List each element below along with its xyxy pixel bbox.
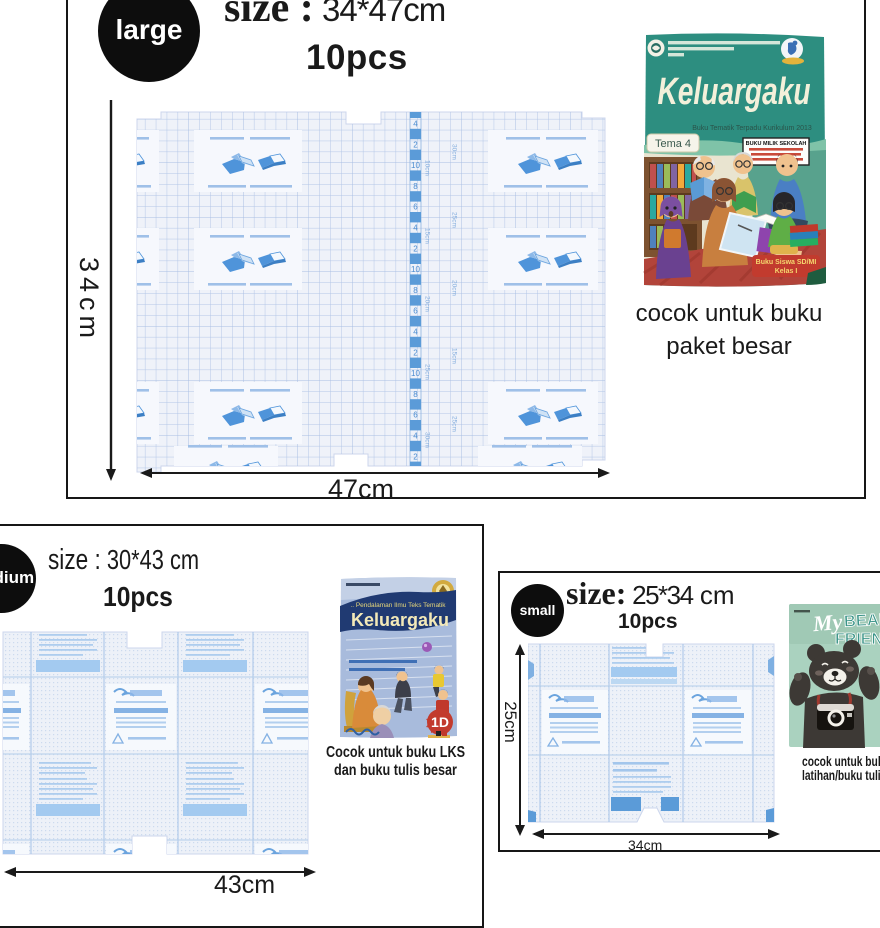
svg-text:6: 6 xyxy=(413,203,418,212)
svg-text:15cm: 15cm xyxy=(424,228,431,244)
svg-text:Buku Siswa SD/MI: Buku Siswa SD/MI xyxy=(756,259,817,266)
svg-text:20cm: 20cm xyxy=(451,280,458,296)
svg-text:2: 2 xyxy=(413,244,418,253)
svg-text:4: 4 xyxy=(413,328,418,337)
svg-text:Buku Tematik Terpadu Kurikulum: Buku Tematik Terpadu Kurikulum 2013 xyxy=(692,125,812,132)
svg-text:25cm: 25cm xyxy=(451,416,458,432)
svg-text:30cm: 30cm xyxy=(424,432,431,448)
svg-text:6: 6 xyxy=(413,411,418,420)
svg-text:Keluargaku: Keluargaku xyxy=(351,610,449,630)
svg-text:BUKU MILIK SEKOLAH: BUKU MILIK SEKOLAH xyxy=(746,141,807,147)
svg-text:Kelas I: Kelas I xyxy=(775,268,798,275)
svg-text:15cm: 15cm xyxy=(451,348,458,364)
svg-text:2: 2 xyxy=(413,348,418,357)
svg-text:4: 4 xyxy=(413,224,418,233)
svg-text:10: 10 xyxy=(411,265,420,274)
svg-text:25cm: 25cm xyxy=(451,212,458,228)
svg-text:1D: 1D xyxy=(431,714,449,730)
svg-text:10: 10 xyxy=(411,369,420,378)
svg-text:25cm: 25cm xyxy=(424,364,431,380)
svg-text:10: 10 xyxy=(411,161,420,170)
svg-text:8: 8 xyxy=(413,390,418,399)
svg-text:Tema 4: Tema 4 xyxy=(655,138,691,150)
svg-text:BEAR: BEAR xyxy=(844,610,880,630)
svg-text:10cm: 10cm xyxy=(424,160,431,176)
svg-text:8: 8 xyxy=(413,182,418,191)
svg-text:4: 4 xyxy=(413,432,418,441)
svg-text:6: 6 xyxy=(413,307,418,316)
svg-text:8: 8 xyxy=(413,286,418,295)
svg-text:2: 2 xyxy=(413,140,418,149)
svg-text:.. Pendalaman Ilmu Teks Temati: .. Pendalaman Ilmu Teks Tematik xyxy=(350,602,446,609)
svg-text:2: 2 xyxy=(413,452,418,461)
svg-text:Keluargaku: Keluargaku xyxy=(657,71,810,113)
svg-text:20cm: 20cm xyxy=(424,296,431,312)
svg-text:30cm: 30cm xyxy=(451,144,458,160)
svg-text:4: 4 xyxy=(413,120,418,129)
